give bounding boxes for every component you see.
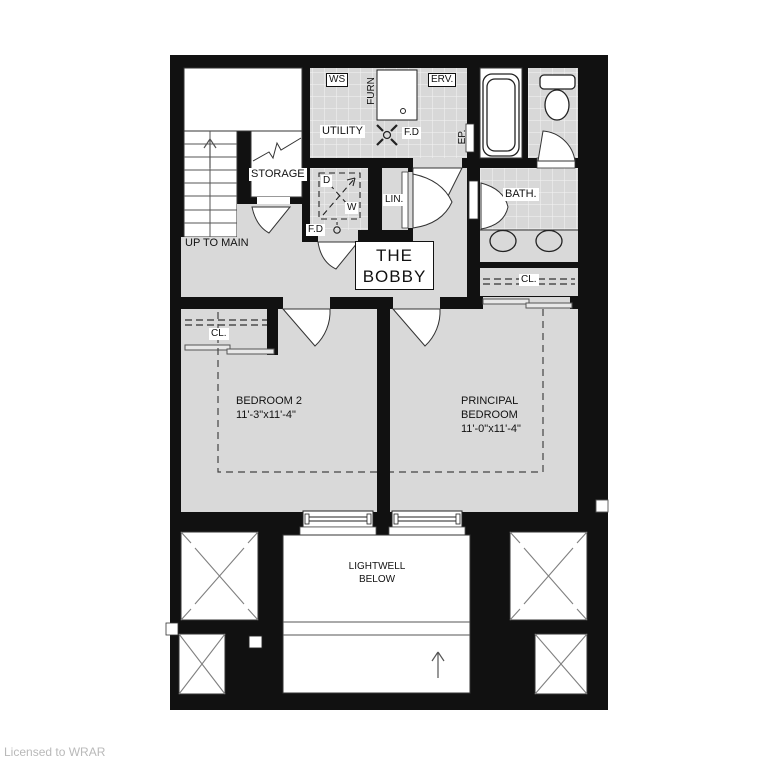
- furnace: [377, 70, 417, 120]
- up-to-main-label: UP TO MAIN: [185, 237, 249, 250]
- bedroom2-name-text: BEDROOM 2: [236, 394, 302, 408]
- exterior-vent-detail: [596, 500, 608, 512]
- bedroom2-dims: 11'-3"x11'-4": [236, 408, 302, 422]
- bath-door-leaf: [469, 181, 478, 219]
- stair-landing: [184, 68, 302, 131]
- wall-post-detail: [249, 636, 262, 648]
- lightwell-label-line1: LIGHTWELL: [326, 560, 428, 573]
- utility-room-label: UTILITY: [320, 125, 365, 138]
- electrical-panel-label: EP.: [457, 122, 469, 152]
- utility-door-opening: [413, 158, 462, 168]
- window-bedroom2: [303, 511, 373, 527]
- laundry-closet: [310, 168, 368, 230]
- principal-closet-label: CL.: [519, 274, 539, 286]
- dryer-label: D: [321, 175, 332, 187]
- principal-name-line2: BEDROOM: [461, 408, 521, 422]
- bedroom2-name: BEDROOM 2 11'-3"x11'-4": [236, 394, 302, 422]
- principal-name: PRINCIPAL BEDROOM 11'-0"x11'-4": [461, 394, 521, 436]
- water-softener-label: WS: [326, 73, 348, 87]
- lightwell-label-line2: BELOW: [326, 573, 428, 586]
- floor-drain-utility-label: F.D: [402, 127, 421, 139]
- principal-name-line1: PRINCIPAL: [461, 394, 521, 408]
- floor-plan-drawing: [0, 0, 766, 768]
- principal-closet-slider-left: [483, 299, 529, 304]
- toilet-bowl: [545, 90, 569, 120]
- principal-closet-slider-right: [526, 303, 572, 308]
- bedroom2-closet-slider-right: [227, 349, 274, 354]
- bath-label: BATH.: [503, 188, 539, 201]
- tub-compartment: [480, 68, 522, 158]
- lightwell-label: LIGHTWELL BELOW: [326, 560, 428, 586]
- floor-plan-page: WS ERV. FURN EP. UTILITY F.D STORAGE UP …: [0, 0, 766, 768]
- lightwell: [283, 535, 470, 693]
- license-credit: Licensed to WRAR: [4, 745, 105, 759]
- bedroom2-closet-label: CL.: [209, 328, 229, 340]
- furnace-label: FURN: [366, 70, 378, 112]
- storage-label: STORAGE: [249, 168, 307, 181]
- wall-notch-left: [166, 623, 178, 635]
- floor-drain-laundry-label: F.D: [306, 224, 325, 236]
- linen-label: LIN.: [383, 194, 405, 206]
- sink-right: [536, 231, 562, 252]
- sink-left: [490, 231, 516, 252]
- storage-room: [251, 131, 302, 197]
- bedroom2-closet-slider-left: [185, 345, 230, 350]
- linen-door-opening: [408, 172, 413, 228]
- plan-title-line1: THE: [376, 245, 413, 266]
- bedroom2-closet-wall: [267, 297, 278, 355]
- window-principal: [392, 511, 462, 527]
- toilet-tank: [540, 75, 575, 89]
- plan-title-line2: BOBBY: [363, 266, 427, 287]
- washer-label: W: [345, 202, 358, 214]
- erv-label: ERV.: [428, 73, 456, 87]
- plan-title-box: THE BOBBY: [355, 241, 434, 290]
- principal-dims: 11'-0"x11'-4": [461, 422, 521, 436]
